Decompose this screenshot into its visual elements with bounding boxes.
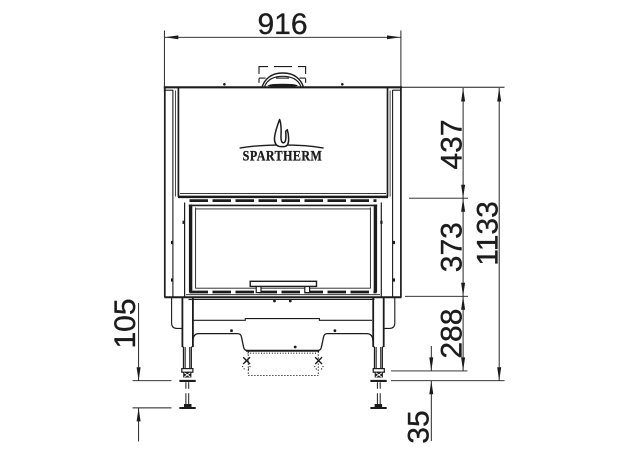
svg-text:373: 373 (436, 222, 469, 272)
svg-text:916: 916 (257, 8, 307, 41)
svg-text:SPARTHERM: SPARTHERM (243, 147, 323, 164)
svg-text:1133: 1133 (472, 201, 505, 266)
svg-text:105: 105 (109, 298, 142, 348)
svg-text:288: 288 (436, 309, 469, 359)
svg-text:437: 437 (436, 119, 469, 169)
svg-text:35: 35 (403, 410, 436, 443)
